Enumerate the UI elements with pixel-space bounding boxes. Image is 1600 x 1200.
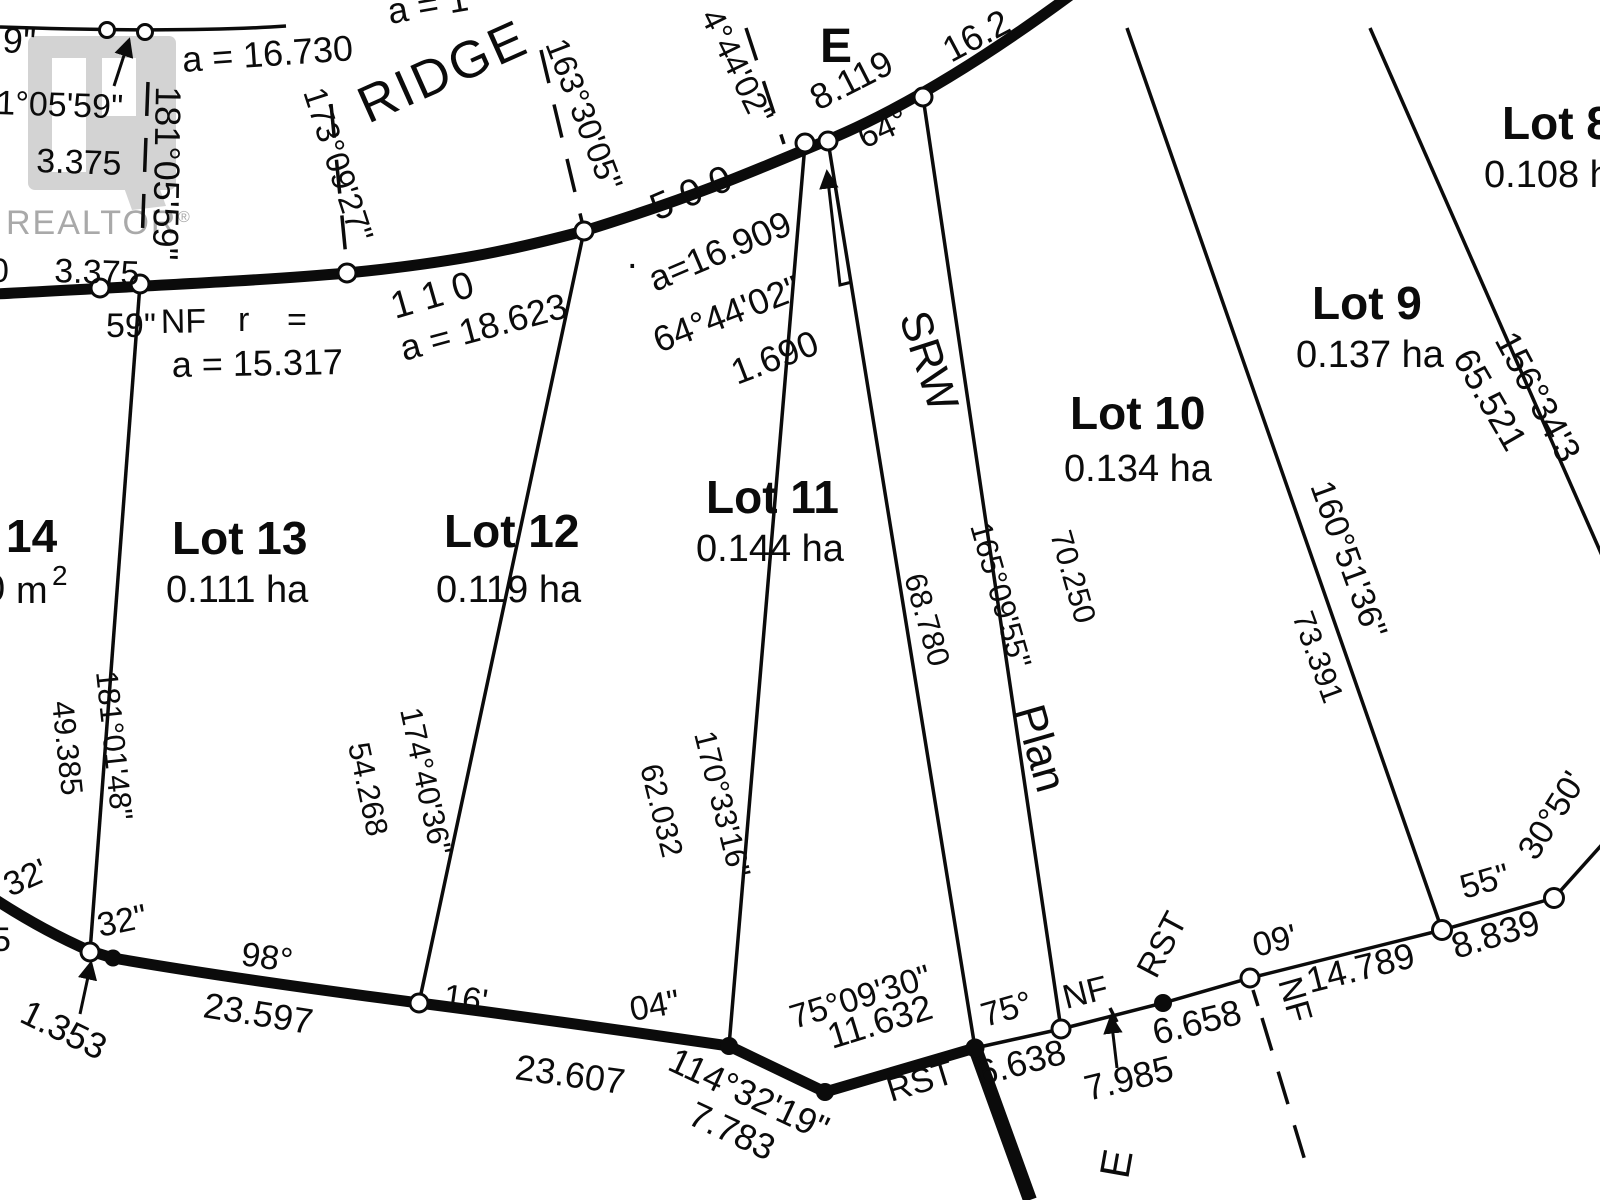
labels: 9" 1°05'59" 3.375 181°05'59" a = 16.730 … xyxy=(0,0,1600,1182)
monument-open xyxy=(410,994,428,1012)
lot14-area-exponent: 2 xyxy=(52,560,68,591)
monument-open xyxy=(819,132,837,150)
distance-6638: 6.638 xyxy=(972,1031,1070,1094)
monument-rst-flat: RST xyxy=(882,1053,958,1109)
digit-partial-0: 0 xyxy=(0,252,9,290)
arrow-1353 xyxy=(80,963,91,1014)
lot8-area: 0.108 ha xyxy=(1484,154,1600,196)
street-name-ridge: RIDGE xyxy=(349,9,537,135)
distance-14789: 14.789 xyxy=(1302,934,1419,1000)
distance-3375-road: 3.375 xyxy=(54,252,140,293)
monument-open xyxy=(81,943,99,961)
digit-partial-5: 5 xyxy=(0,921,11,959)
srw-west-boundary xyxy=(828,141,975,1048)
bearing-fragment-04in: 04" xyxy=(627,983,683,1029)
lot14-label: 14 xyxy=(6,510,58,562)
bearing-181-05-59-vertical: 181°05'59" xyxy=(145,86,189,261)
bearing-partial-9in: 9" xyxy=(1,19,37,62)
monument-open xyxy=(575,222,593,240)
lot9-area: 0.137 ha xyxy=(1296,334,1445,376)
lot10-area: 0.134 ha xyxy=(1064,448,1213,490)
lot13-label: Lot 13 xyxy=(172,512,307,564)
monument-open xyxy=(1241,969,1259,987)
lot10-label: Lot 10 xyxy=(1070,387,1205,439)
monument-rst-rotated: RST xyxy=(1130,906,1195,984)
distance-7985: 7.985 xyxy=(1080,1047,1177,1109)
monument-nf-flat: NF xyxy=(1059,969,1112,1017)
monument-open xyxy=(138,25,153,40)
distance-73391: 73.391 xyxy=(1285,606,1350,707)
distance-23607: 23.607 xyxy=(513,1046,628,1102)
plat-canvas: REALTOR ® xyxy=(0,0,1600,1200)
bearing-fragment-55in: 55" xyxy=(1456,856,1514,906)
survey-plat-map: REALTOR ® xyxy=(0,0,1600,1200)
lot11-label: Lot 11 xyxy=(706,471,839,523)
distance-70250: 70.250 xyxy=(1043,526,1103,627)
dashed-projection-165 xyxy=(1262,1018,1309,1174)
lot13-lot14-boundary xyxy=(90,284,140,952)
bearing-181-01-48: 181°01'48" xyxy=(89,669,139,822)
distance-8839: 8.839 xyxy=(1446,901,1544,967)
distance-49385: 49.385 xyxy=(45,699,90,797)
distance-62032: 62.032 xyxy=(633,760,690,860)
monument-filled xyxy=(105,950,122,967)
lot11-area: 0.144 ha xyxy=(696,528,845,570)
srw-plan-label: Plan xyxy=(1004,699,1075,797)
bearing-fragment-09ft: 09' xyxy=(1249,917,1301,965)
bearing-174-40-36: 174°40'36" xyxy=(393,704,458,858)
angle-98: 98° xyxy=(239,935,295,980)
equals-sign: = xyxy=(287,301,307,339)
street-letter-e-bottom: E xyxy=(1091,1146,1142,1182)
number-500: 5 0 0 xyxy=(644,158,738,230)
monument-filled xyxy=(816,1083,834,1101)
lot9-label: Lot 9 xyxy=(1312,277,1422,329)
arc-length-partial-top: a = 1 xyxy=(384,0,471,32)
monument-open xyxy=(338,264,356,282)
bearing-30-50-clipped: 30°50' xyxy=(1511,765,1594,866)
bearing-fragment-32ft: 32' xyxy=(0,852,54,905)
bearing-170-33-16: 170°33'16" xyxy=(687,727,757,881)
lot14-area-partial: 0 xyxy=(0,568,5,610)
lot13-area: 0.111 ha xyxy=(166,569,309,611)
stray-dot: . xyxy=(627,235,638,277)
distance-54268: 54.268 xyxy=(341,739,395,839)
arc-length-15317: a = 15.317 xyxy=(171,341,343,385)
monument-open xyxy=(100,23,115,38)
tick-southeast xyxy=(1253,990,1258,1006)
monument-filled xyxy=(720,1037,738,1055)
monument-nf-label: NF xyxy=(160,302,206,341)
bearing-fragment-16ft: 16' xyxy=(441,977,490,1021)
monument-open xyxy=(796,134,814,152)
angle-64: 64° xyxy=(852,101,914,157)
bearing-4-44-02: 4°44'02" xyxy=(694,3,781,130)
distance-1353: 1.353 xyxy=(14,991,113,1067)
bearing-165-09-55: 165°09'55" xyxy=(963,518,1038,672)
distance-3375-top: 3.375 xyxy=(36,142,122,183)
bearing-fragment-59in: 59" xyxy=(106,307,156,345)
monument-open xyxy=(1545,889,1564,908)
bearing-163-30-05: 163°30'05" xyxy=(538,33,630,195)
lot8-label: Lot 8 xyxy=(1502,97,1600,149)
bearing-181-05-59-clipped: 1°05'59" xyxy=(0,84,124,126)
monument-open xyxy=(914,88,932,106)
lot12-area: 0.119 ha xyxy=(436,569,582,611)
lot12-label: Lot 12 xyxy=(444,505,579,557)
bearing-fragment-32in: 32" xyxy=(94,897,151,945)
angle-75: 75° xyxy=(977,984,1037,1035)
distance-23597: 23.597 xyxy=(201,984,316,1042)
lot-boundaries xyxy=(90,28,1600,1048)
lot14-area-unit: m xyxy=(16,570,48,612)
distance-1690: 1.690 xyxy=(725,322,824,393)
radius-symbol-r: r xyxy=(238,301,249,339)
arc-length-16730: a = 16.730 xyxy=(181,27,355,80)
